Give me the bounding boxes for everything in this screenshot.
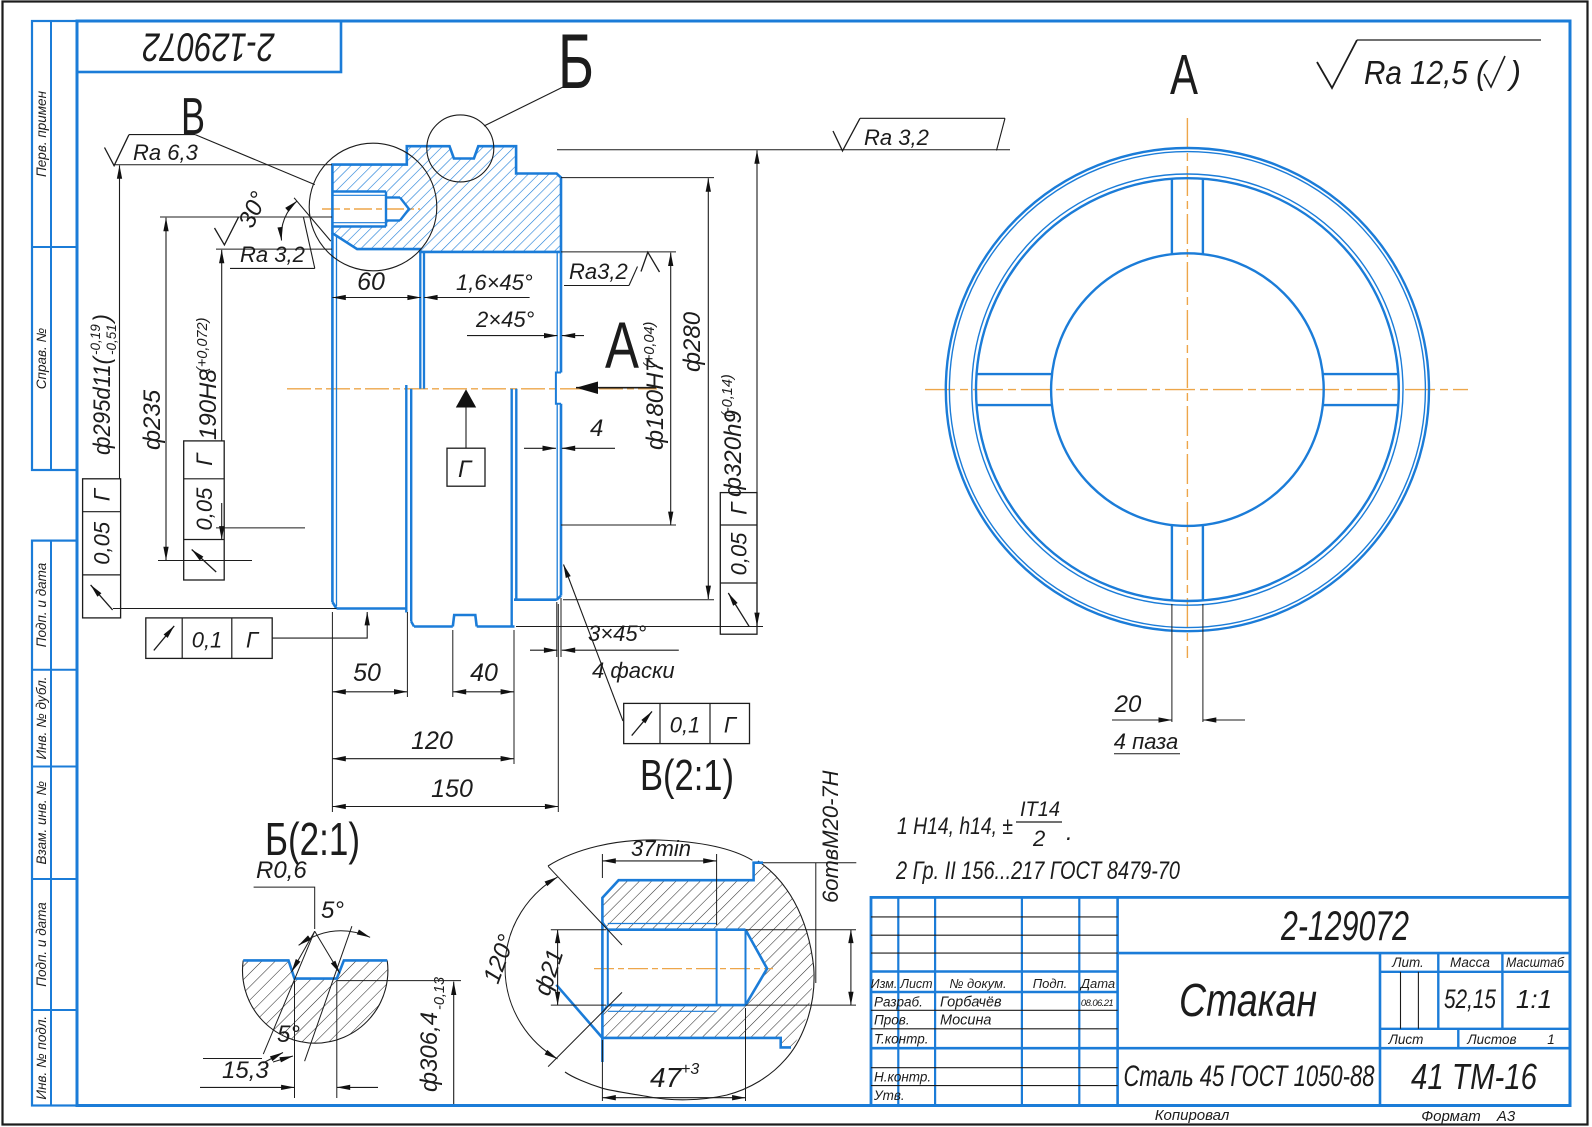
svg-text:R0,6: R0,6 — [256, 857, 307, 884]
svg-text:3×45°: 3×45° — [588, 621, 647, 646]
svg-text:Инв. № дубл.: Инв. № дубл. — [34, 676, 49, 759]
svg-text:-0,13: -0,13 — [432, 977, 448, 1010]
svg-text:Ra 3,2: Ra 3,2 — [864, 125, 929, 150]
svg-text:150: 150 — [431, 775, 473, 803]
svg-text:2-129072: 2-129072 — [1280, 902, 1409, 949]
svg-text:Масштаб: Масштаб — [1506, 955, 1564, 970]
svg-text:Г: Г — [90, 487, 115, 501]
svg-text:40: 40 — [470, 659, 498, 687]
svg-text:0,05: 0,05 — [192, 487, 217, 531]
svg-text:Т.контр.: Т.контр. — [874, 1032, 928, 1047]
svg-text:0,05: 0,05 — [90, 521, 115, 565]
svg-text:Лист: Лист — [1388, 1032, 1424, 1047]
svg-text:№ докум.: № докум. — [949, 976, 1006, 991]
svg-text:4 паза: 4 паза — [1114, 729, 1178, 754]
svg-text:Листов: Листов — [1466, 1032, 1516, 1047]
svg-text:ф306,4: ф306,4 — [416, 1012, 443, 1092]
svg-text:4: 4 — [590, 415, 603, 442]
svg-text:ф180Н7: ф180Н7 — [642, 358, 669, 450]
svg-text:0,1: 0,1 — [192, 627, 223, 652]
svg-text:-0,19: -0,19 — [88, 324, 103, 355]
svg-text:Подп. и дата: Подп. и дата — [34, 902, 49, 987]
svg-text:ф320h9: ф320h9 — [720, 410, 747, 497]
svg-text:Копировал: Копировал — [1155, 1107, 1230, 1124]
svg-text:Справ. №: Справ. № — [34, 327, 49, 389]
svg-text:Горбачёв: Горбачёв — [940, 995, 1002, 1011]
svg-text:(+0,072): (+0,072) — [195, 318, 211, 372]
svg-text:Инв. № подл.: Инв. № подл. — [34, 1016, 49, 1100]
svg-text:Разраб.: Разраб. — [874, 995, 923, 1010]
svg-text:IT14: IT14 — [1020, 798, 1060, 821]
svg-text:Дата: Дата — [1079, 976, 1115, 991]
svg-text:Взам. инв. №: Взам. инв. № — [34, 781, 49, 865]
svg-text:ф235: ф235 — [139, 389, 166, 450]
svg-text:Ra3,2: Ra3,2 — [569, 259, 628, 284]
svg-text:50: 50 — [353, 659, 381, 687]
svg-text:5°: 5° — [321, 897, 344, 924]
svg-text:Изм.: Изм. — [871, 977, 898, 991]
svg-text:1 Н14, h14, ±: 1 Н14, h14, ± — [897, 813, 1013, 840]
svg-text:1:1: 1:1 — [1516, 984, 1552, 1014]
svg-text:Масса: Масса — [1450, 955, 1490, 970]
svg-text:Г: Г — [192, 452, 217, 466]
svg-text:(-0,14): (-0,14) — [720, 374, 736, 417]
svg-text:Утв.: Утв. — [873, 1088, 905, 1103]
svg-text:2-129072: 2-129072 — [143, 25, 276, 69]
svg-text:Ra 6,3: Ra 6,3 — [133, 140, 199, 165]
svg-text:В(2:1): В(2:1) — [640, 751, 734, 800]
svg-text:.: . — [1066, 819, 1073, 846]
svg-text:Подп.: Подп. — [1033, 976, 1068, 991]
svg-text:41 ТМ-16: 41 ТМ-16 — [1411, 1056, 1538, 1097]
svg-text:60: 60 — [357, 268, 385, 296]
svg-text:Подп. и дата: Подп. и дата — [34, 562, 49, 647]
svg-text:Лист: Лист — [899, 977, 932, 991]
svg-text:Перв. примен: Перв. примен — [34, 90, 49, 177]
svg-text:0,05: 0,05 — [727, 532, 752, 576]
svg-text:Лит.: Лит. — [1391, 955, 1424, 970]
svg-text:2: 2 — [1032, 826, 1045, 851]
svg-text:1,6×45°: 1,6×45° — [456, 270, 533, 295]
svg-text:Ra 3,2: Ra 3,2 — [240, 242, 305, 267]
svg-text:Мосина: Мосина — [940, 1013, 992, 1029]
svg-text:5°: 5° — [277, 1021, 300, 1048]
svg-text:190Н8: 190Н8 — [195, 369, 222, 440]
svg-text:47: 47 — [650, 1062, 683, 1093]
svg-text:А: А — [1170, 43, 1198, 107]
svg-text:Г: Г — [246, 627, 260, 652]
svg-text:Н.контр.: Н.контр. — [874, 1070, 931, 1085]
svg-text:ф295d11(: ф295d11( — [89, 354, 116, 455]
svg-text:2×45°: 2×45° — [475, 307, 535, 332]
svg-text:52,15: 52,15 — [1444, 984, 1497, 1014]
svg-text:2 Гр. II 156...217 ГОСТ 8479-: 2 Гр. II 156...217 ГОСТ 8479-70 — [895, 857, 1180, 885]
svg-text:08.06.21: 08.06.21 — [1081, 998, 1113, 1009]
svg-text:Г: Г — [458, 456, 473, 483]
svg-text:120: 120 — [411, 727, 453, 755]
svg-text:(+0,04): (+0,04) — [642, 322, 658, 368]
svg-text:+3: +3 — [681, 1061, 699, 1078]
svg-text:Б: Б — [558, 17, 594, 105]
svg-text:6отвМ20-7Н: 6отвМ20-7Н — [818, 770, 843, 903]
svg-text:0,1: 0,1 — [670, 713, 701, 738]
svg-text:15,3: 15,3 — [222, 1057, 269, 1084]
svg-text:Г: Г — [727, 501, 752, 515]
svg-text:ф280: ф280 — [679, 311, 706, 372]
svg-text:Сталь 45 ГОСТ 1050-88: Сталь 45 ГОСТ 1050-88 — [1124, 1060, 1375, 1093]
svg-text:Ra 12,5 (: Ra 12,5 ( — [1364, 54, 1489, 91]
svg-text:Формат: Формат — [1421, 1108, 1481, 1125]
svg-text:А3: А3 — [1496, 1108, 1516, 1125]
svg-text:37min: 37min — [631, 836, 691, 861]
svg-text:Стакан: Стакан — [1179, 974, 1317, 1026]
svg-text:Г: Г — [724, 713, 738, 738]
svg-text:Пров.: Пров. — [874, 1013, 910, 1028]
svg-text:А: А — [605, 308, 639, 382]
svg-text:1: 1 — [1547, 1032, 1555, 1047]
svg-text:-0,51: -0,51 — [104, 324, 119, 355]
svg-text:4 фаски: 4 фаски — [592, 658, 675, 683]
svg-text:20: 20 — [1114, 691, 1142, 718]
